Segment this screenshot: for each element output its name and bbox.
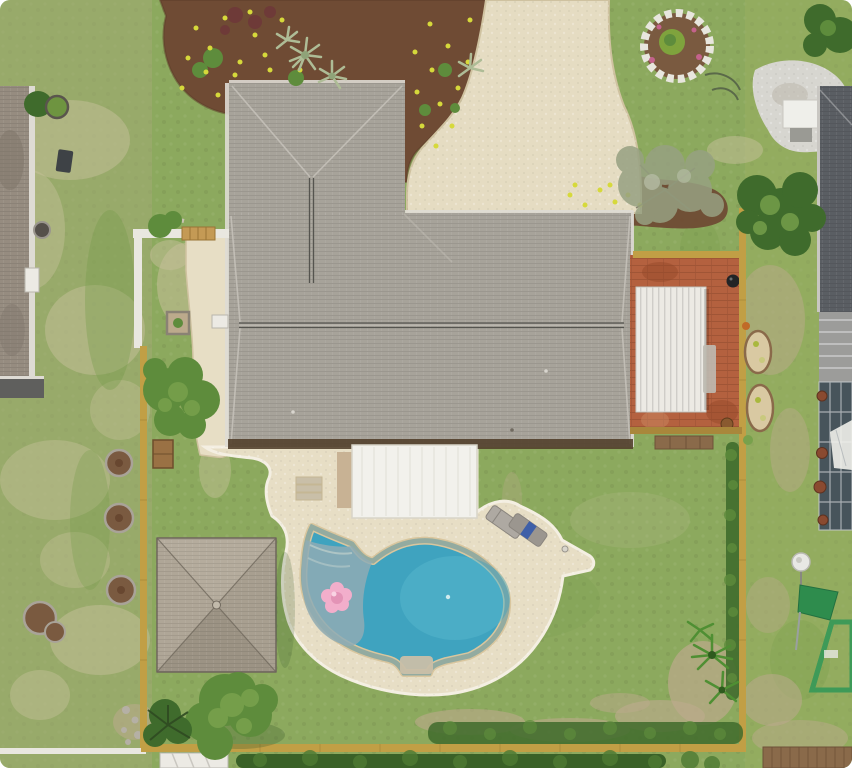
gazebo-shadow (275, 552, 295, 668)
right-fence (739, 208, 746, 748)
ac-unit (56, 149, 74, 173)
right-fence-hedge (724, 442, 739, 700)
right-neighbor-roof2 (819, 312, 852, 382)
white-patio-canopy (352, 445, 477, 518)
roof-vent3 (510, 428, 514, 432)
pool-swimout-bench (400, 656, 433, 674)
aerial-photo-canvas (0, 0, 852, 768)
left-yellow-fence (140, 346, 147, 748)
wall-vent-box (212, 315, 228, 328)
left-fire-pit (34, 222, 50, 238)
right-boardwalk (763, 747, 852, 768)
aerial-photo: Overhead aerial photo of a suburban home… (0, 0, 852, 768)
topright-bush-highlight (820, 20, 836, 36)
neighbor-door-pad (790, 128, 812, 142)
left-stone-planter (46, 96, 68, 118)
patio-door (337, 452, 352, 508)
roof-vent2 (544, 369, 548, 373)
circular-stone-planter (644, 13, 710, 79)
paver-steps (296, 477, 322, 500)
gazebo (157, 538, 276, 672)
left-neighbor-gutter (29, 86, 35, 392)
left-bottom-fence (0, 748, 146, 754)
orange-pot (742, 322, 750, 330)
brick-patio-area (630, 255, 742, 449)
deck-ornament (562, 546, 568, 552)
patio-bench (703, 345, 716, 393)
left-neighbor-shed-roof (0, 378, 44, 398)
white-shed (636, 287, 709, 412)
patio-board-walk (655, 436, 713, 449)
patio-bottom-fence (630, 427, 742, 434)
fire-pit (727, 275, 740, 288)
chimney (25, 268, 39, 292)
wooden-gate (182, 227, 215, 240)
stone-square-planter (167, 312, 189, 334)
bottom-fence-hedge (428, 720, 743, 744)
wooden-box (153, 440, 173, 468)
left-white-fence (134, 230, 142, 348)
patio-top-fence (633, 251, 742, 258)
roof-vent (291, 410, 295, 414)
pool-drain (446, 595, 450, 599)
gazebo-peak (213, 601, 221, 609)
planter-plant (743, 435, 753, 445)
